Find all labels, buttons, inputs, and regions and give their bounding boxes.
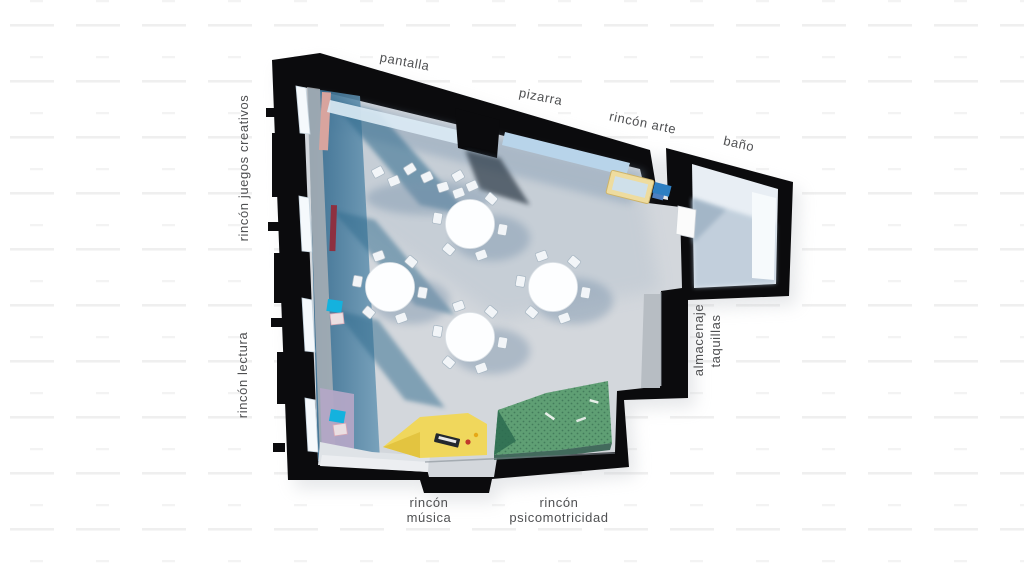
label-rincon-psicomotricidad-line2: psicomotricidad <box>509 510 608 525</box>
label-rincon-musica-line2: música <box>407 510 452 525</box>
label-rincon-juegos-creativos: rincón juegos creativos <box>236 95 251 242</box>
label-rincon-lectura: rincón lectura <box>235 332 250 419</box>
label-rincon-musica-line1: rincón <box>409 495 448 510</box>
bathroom-door <box>676 206 696 238</box>
label-almacenaje-line2: taquillas <box>708 314 723 367</box>
label-almacenaje-line1: almacenaje <box>691 304 706 377</box>
label-rincon-psicomotricidad-line1: rincón <box>539 495 578 510</box>
floor-plan-render: pantalla pizarra rincón arte baño rincón… <box>0 0 1024 576</box>
lockers-strip <box>641 294 660 388</box>
floor-plan-page: pantalla pizarra rincón arte baño rincón… <box>0 0 1024 576</box>
